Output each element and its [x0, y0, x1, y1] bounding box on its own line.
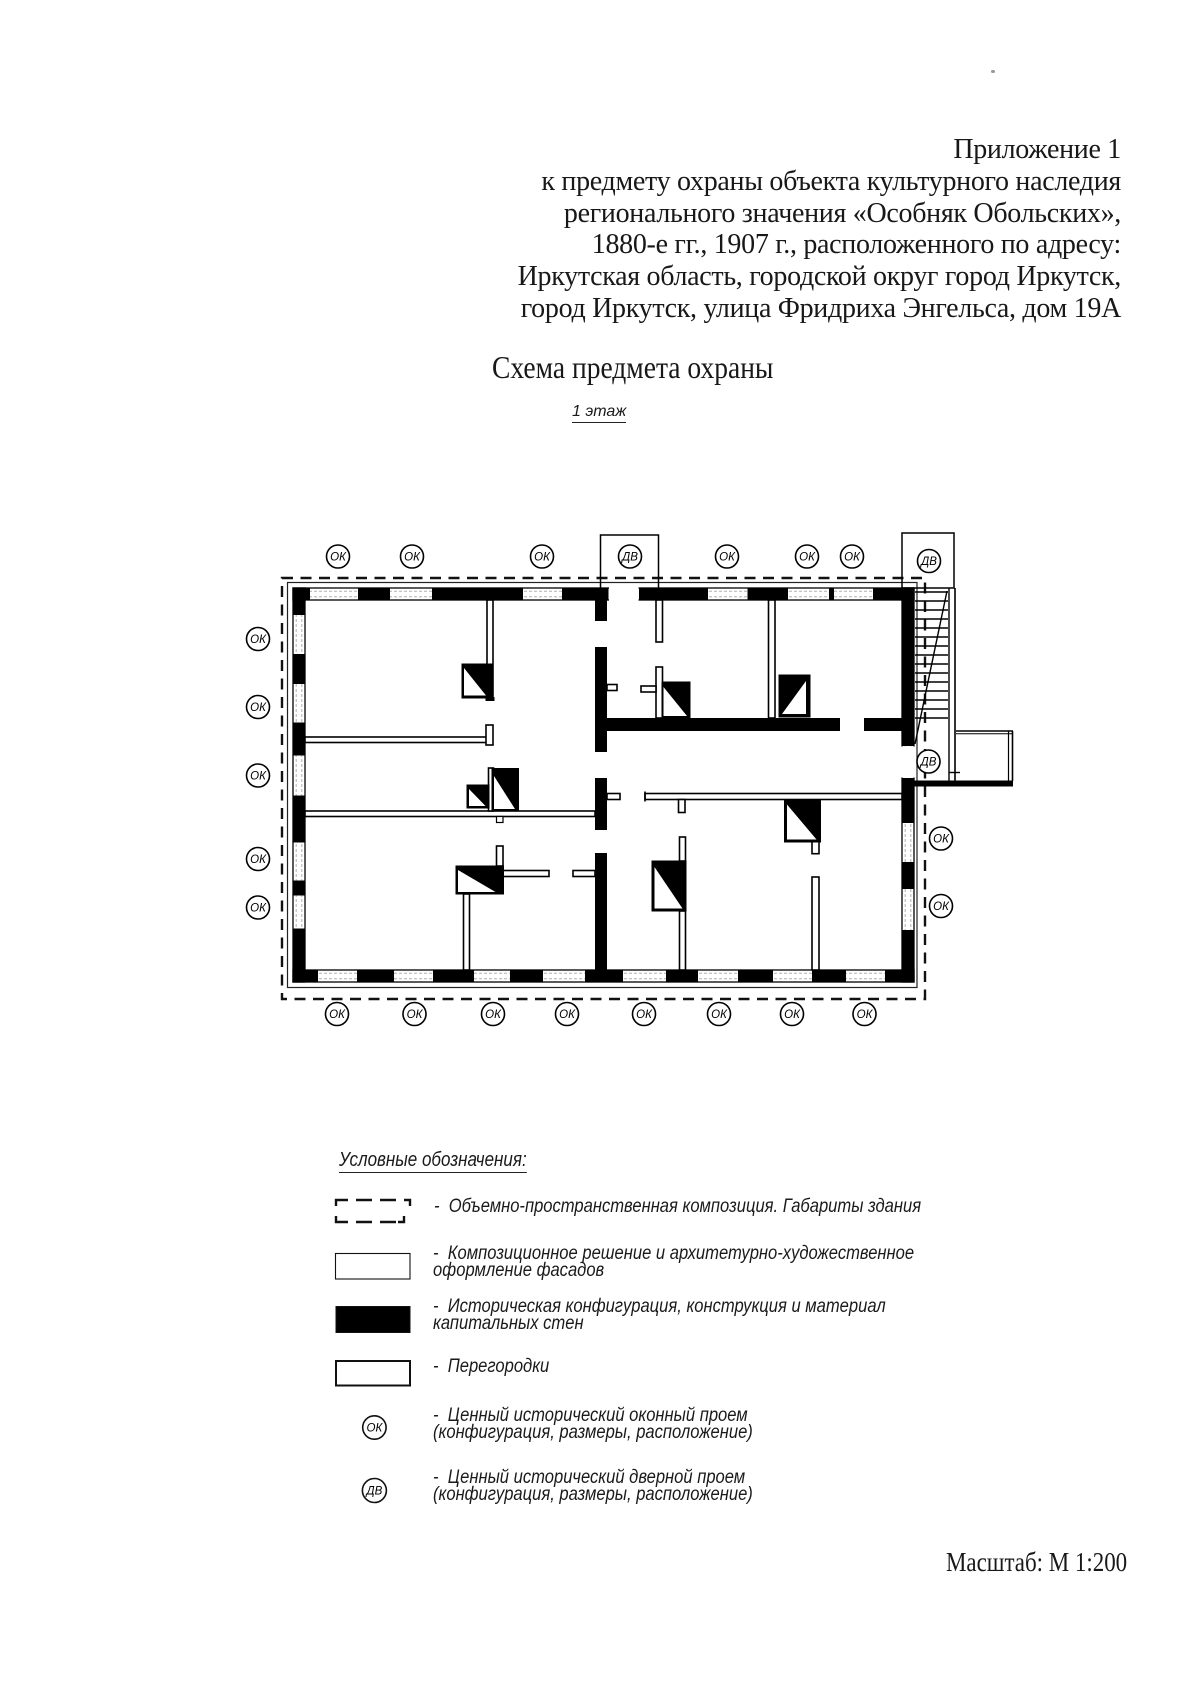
svg-text:ОК: ОК: [559, 1009, 576, 1021]
svg-text:ОК: ОК: [636, 1009, 653, 1021]
svg-text:ДВ: ДВ: [365, 1486, 383, 1498]
svg-text:ОК: ОК: [799, 552, 816, 564]
svg-text:ДВ: ДВ: [919, 556, 937, 568]
svg-text:ОК: ОК: [329, 1009, 346, 1021]
svg-text:ОК: ОК: [250, 702, 267, 714]
svg-text:ОК: ОК: [534, 552, 551, 564]
svg-text:ОК: ОК: [844, 552, 861, 564]
svg-text:ОК: ОК: [933, 834, 950, 846]
svg-text:ОК: ОК: [407, 1009, 424, 1021]
svg-text:ОК: ОК: [711, 1009, 728, 1021]
svg-text:ОК: ОК: [367, 1423, 384, 1435]
svg-text:ОК: ОК: [330, 552, 347, 564]
svg-text:ОК: ОК: [250, 854, 267, 866]
svg-text:ОК: ОК: [250, 903, 267, 915]
svg-text:ОК: ОК: [404, 552, 421, 564]
svg-text:ДВ: ДВ: [919, 757, 937, 769]
svg-text:ОК: ОК: [719, 552, 736, 564]
svg-text:ДВ: ДВ: [620, 552, 638, 564]
svg-text:ОК: ОК: [784, 1009, 801, 1021]
svg-text:ОК: ОК: [485, 1009, 502, 1021]
svg-text:ОК: ОК: [857, 1009, 874, 1021]
svg-text:ОК: ОК: [250, 771, 267, 783]
svg-text:ОК: ОК: [933, 901, 950, 913]
svg-text:ОК: ОК: [250, 634, 267, 646]
